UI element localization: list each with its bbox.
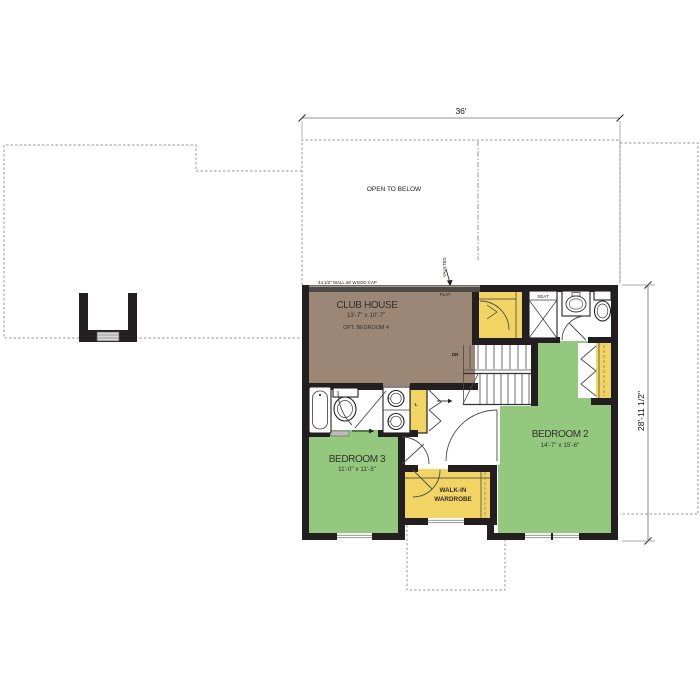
room-note: OPT. BEDROOM 4 [343, 325, 389, 331]
closet-bedroom2-floor [596, 343, 611, 398]
stairs: DN [452, 345, 531, 405]
room-name: CLUB HOUSE [336, 300, 398, 311]
room-name-line2: WARDROBE [434, 496, 471, 503]
bathroom-top-right: SEAT [529, 291, 611, 340]
threshold [331, 431, 349, 436]
room-name-line1: WALK-IN [440, 487, 467, 494]
bifold-door-icon [429, 410, 441, 431]
double-sink-vanity-icon [383, 387, 410, 433]
linen-closet-floor [410, 386, 427, 433]
flat-label: FLAT [440, 292, 451, 297]
toilet-icon [333, 388, 358, 421]
room-bedroom3-floor [306, 430, 401, 536]
room-dims: 13'-7" x 10'-7" [347, 312, 386, 319]
stairs-down-label: DN [452, 352, 458, 357]
bathroom-main [309, 387, 410, 433]
bedroom3-door [402, 437, 429, 464]
shower-icon: SEAT [529, 291, 557, 338]
room-dims: 11'-0" x 11'-3" [338, 466, 376, 473]
window-bedroom3 [337, 533, 372, 540]
bath-door [562, 316, 586, 340]
open-to-below-label: OPEN TO BELOW [367, 186, 422, 193]
room-name: BEDROOM 3 [329, 454, 386, 465]
roof-outline-left [4, 145, 302, 338]
room-dims: 14'-7" x 15'-6" [541, 442, 580, 449]
bifold-door-icon [429, 390, 441, 410]
room-bedroom2-floor-b [498, 406, 543, 536]
roof-outline-right [620, 143, 698, 514]
hallway [440, 406, 500, 465]
toilet-icon [594, 291, 611, 321]
floor-plan-canvas: OPEN TO BELOW VAULTED 36' 28'-11 1/2" [0, 0, 700, 700]
seat-label: SEAT [537, 294, 548, 299]
dimension-right-value: 28'-11 1/2" [636, 391, 646, 431]
room-name: BEDROOM 2 [532, 429, 589, 440]
room-wardrobe-floor [402, 469, 492, 519]
chimney-vent [97, 332, 119, 341]
vaulted-label: VAULTED [442, 257, 447, 277]
linen-label: L [415, 402, 418, 407]
floor-plan-drawing: OPEN TO BELOW VAULTED 36' 28'-11 1/2" [0, 0, 700, 700]
window-bedroom2-right [553, 533, 579, 540]
window-wardrobe [428, 518, 464, 525]
hall-arrow-icon [437, 399, 453, 403]
bathtub-icon [309, 387, 331, 433]
open-to-below-area: OPEN TO BELOW VAULTED [302, 140, 620, 287]
wall-note-label: 44 1/2" WALL W/ WOOD CAP [318, 280, 377, 285]
window-bedroom2-left [525, 533, 551, 540]
chimney [79, 293, 137, 342]
dimension-top: 36' [299, 106, 624, 283]
dimension-right: 28'-11 1/2" [622, 282, 655, 545]
sink-icon [562, 291, 590, 316]
dimension-top-value: 36' [455, 106, 466, 116]
